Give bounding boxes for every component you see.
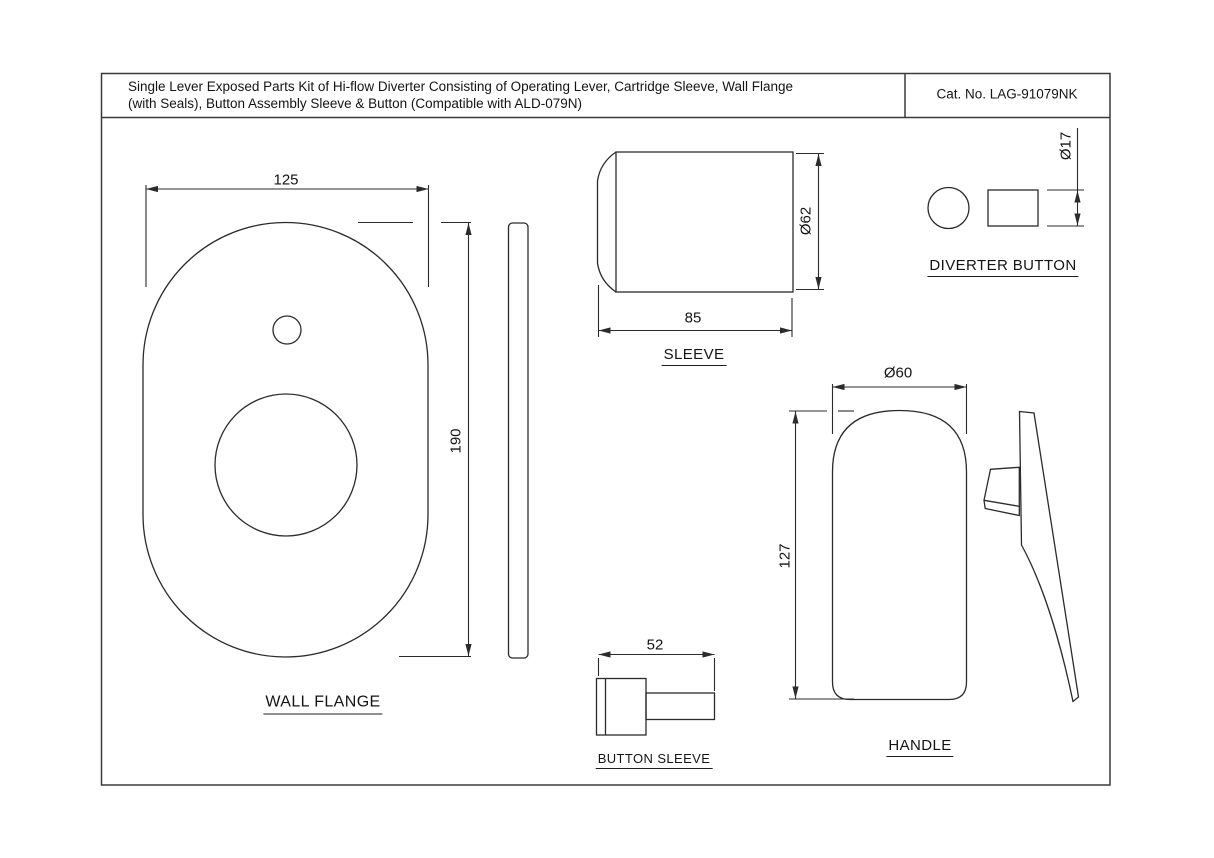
drawing-sheet: Single Lever Exposed Parts Kit of Hi-flo… [0, 0, 1214, 858]
wall-flange-drawing [143, 223, 528, 659]
handle-height-dim: 127 [777, 543, 794, 568]
title-block-description: Single Lever Exposed Parts Kit of Hi-flo… [128, 78, 898, 112]
button-sleeve-label: BUTTON SLEEVE [596, 751, 713, 769]
button-sleeve-length-dim: 52 [647, 637, 664, 654]
diverter-button-front-view [928, 188, 969, 229]
wall-flange-side-view [509, 223, 529, 658]
sleeve-diameter-dim: Ø62 [798, 207, 815, 235]
wall-flange-large-hole [215, 394, 357, 536]
button-sleeve-body [597, 679, 647, 736]
sleeve-length-dim: 85 [685, 310, 702, 327]
handle-side-view-connector [984, 467, 1019, 515]
button-sleeve-drawing [597, 679, 715, 736]
button-sleeve-dimensions [599, 655, 715, 692]
drawing-canvas [0, 0, 1214, 858]
description-line-1: Single Lever Exposed Parts Kit of Hi-flo… [128, 78, 898, 95]
catalog-number: Cat. No. LAG-91079NK [936, 87, 1077, 102]
diverter-button-label: DIVERTER BUTTON [927, 257, 1078, 277]
handle-front-view [833, 411, 967, 700]
sleeve-label: SLEEVE [662, 346, 727, 366]
diverter-button-side-view [988, 190, 1038, 226]
wall-flange-width-dim: 125 [273, 172, 298, 189]
description-line-2: (with Seals), Button Assembly Sleeve & B… [128, 95, 898, 112]
sleeve-body [616, 152, 793, 292]
wall-flange-label: WALL FLANGE [263, 694, 382, 715]
handle-diameter-dim: Ø60 [884, 365, 912, 382]
sleeve-dimensions [599, 154, 825, 338]
wall-flange-small-hole [273, 316, 301, 344]
diverter-button-diameter-dim: Ø17 [1058, 132, 1075, 160]
handle-side-view-lever [1020, 412, 1079, 702]
button-sleeve-shaft [646, 693, 715, 720]
sleeve-end-cap [598, 152, 617, 292]
handle-drawing [833, 411, 1079, 702]
wall-flange-outline [143, 223, 428, 658]
handle-label: HANDLE [886, 737, 953, 757]
wall-flange-height-dim: 190 [448, 428, 465, 453]
sleeve-drawing [598, 152, 794, 292]
handle-dimensions [789, 384, 967, 699]
diverter-button-drawing [928, 188, 1038, 229]
